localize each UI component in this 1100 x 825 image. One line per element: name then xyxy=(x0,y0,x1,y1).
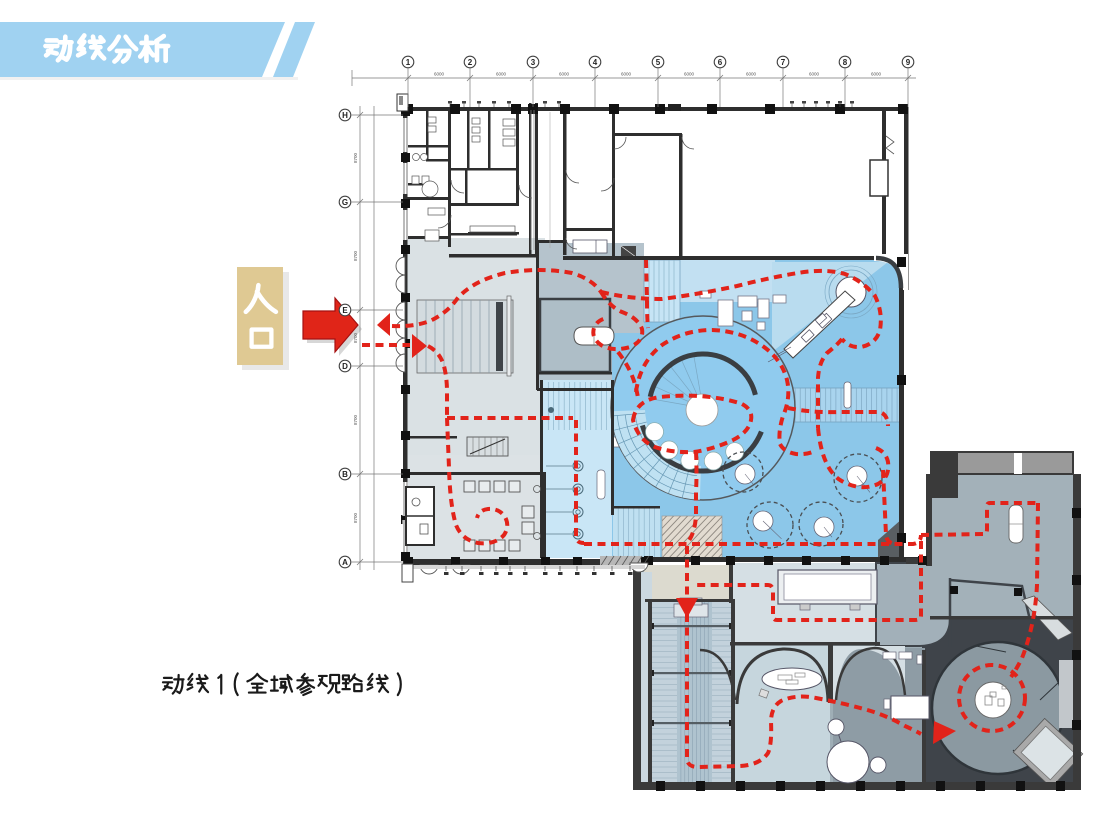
svg-text:4: 4 xyxy=(593,58,598,67)
svg-text:8700: 8700 xyxy=(353,250,358,261)
svg-text:6000: 6000 xyxy=(496,72,507,77)
svg-text:6000: 6000 xyxy=(684,72,695,77)
svg-text:1: 1 xyxy=(406,58,411,67)
svg-text:6000: 6000 xyxy=(621,72,632,77)
svg-text:6000: 6000 xyxy=(434,72,445,77)
svg-text:A: A xyxy=(342,558,348,567)
svg-text:8700: 8700 xyxy=(353,414,358,425)
svg-text:5: 5 xyxy=(656,58,661,67)
svg-text:3: 3 xyxy=(531,58,536,67)
svg-text:D: D xyxy=(342,362,348,371)
svg-text:8700: 8700 xyxy=(353,332,358,343)
svg-text:6000: 6000 xyxy=(871,72,882,77)
svg-text:8700: 8700 xyxy=(353,152,358,163)
svg-text:6000: 6000 xyxy=(746,72,757,77)
svg-text:E: E xyxy=(342,306,348,315)
svg-text:G: G xyxy=(342,198,348,207)
svg-text:8700: 8700 xyxy=(353,512,358,523)
svg-text:9: 9 xyxy=(906,58,911,67)
svg-text:6000: 6000 xyxy=(809,72,820,77)
svg-text:2: 2 xyxy=(468,58,473,67)
svg-text:H: H xyxy=(342,111,348,120)
svg-text:B: B xyxy=(342,470,348,479)
svg-text:7: 7 xyxy=(781,58,786,67)
svg-text:8: 8 xyxy=(843,58,848,67)
svg-text:6000: 6000 xyxy=(559,72,570,77)
svg-text:6: 6 xyxy=(718,58,723,67)
